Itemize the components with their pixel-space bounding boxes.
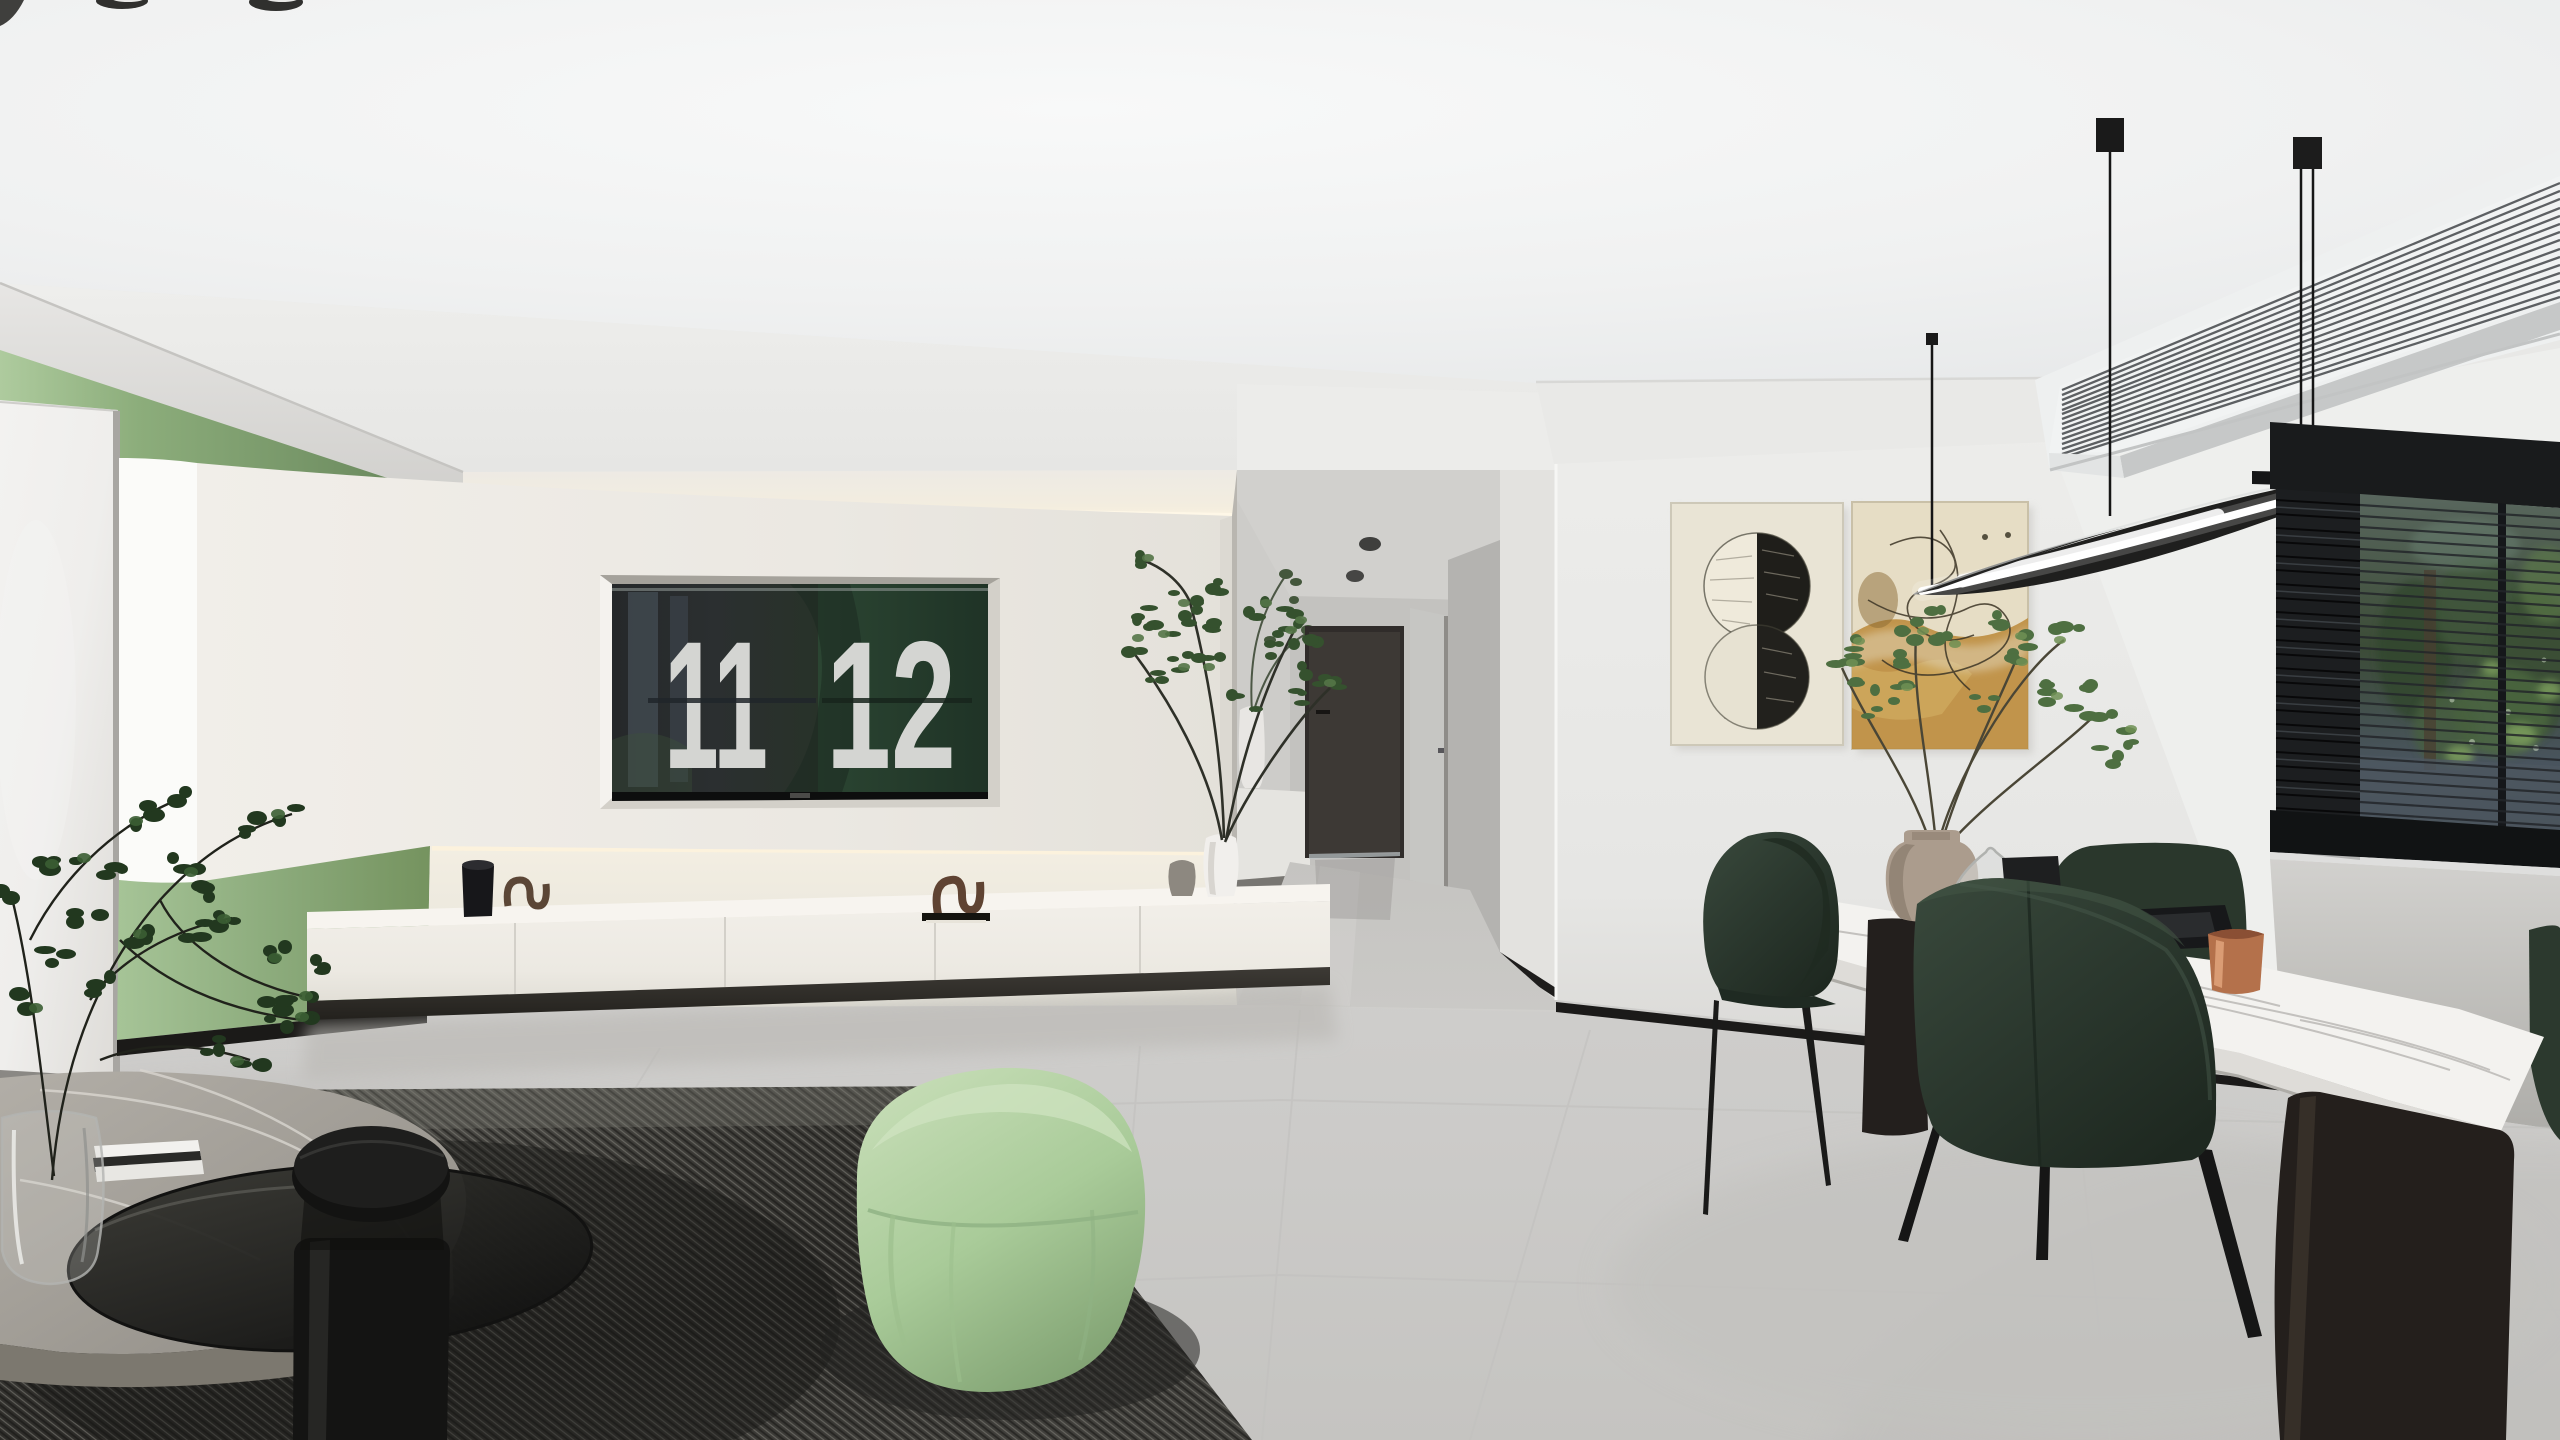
svg-text:12: 12 (826, 603, 956, 807)
svg-text:11: 11 (664, 603, 768, 807)
